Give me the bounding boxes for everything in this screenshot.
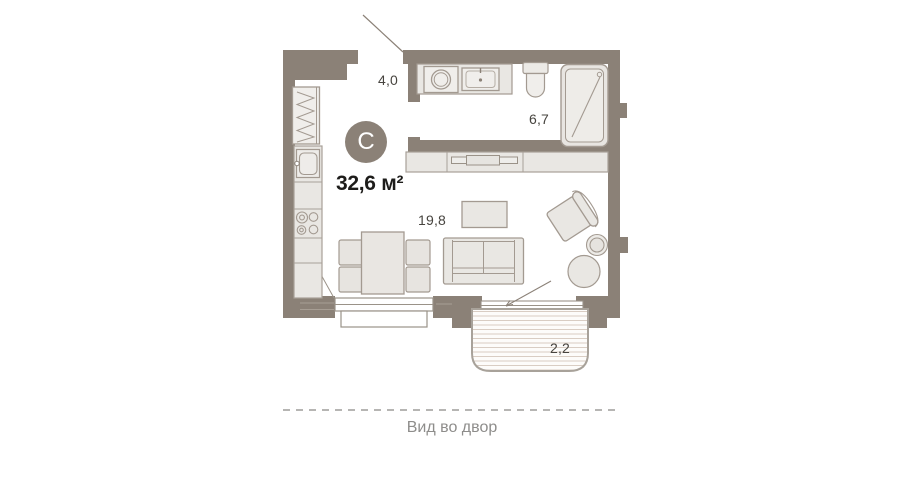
balcony-area-label: 2,2: [550, 340, 570, 356]
window: [335, 298, 433, 327]
dining-table: [362, 232, 405, 294]
sofa: [444, 238, 524, 284]
total-area-label: 32,6 м²: [336, 172, 403, 196]
entrance-door-swing: [363, 15, 403, 52]
living-room-area-label: 19,8: [418, 212, 446, 228]
bathtub: [561, 65, 608, 147]
pouf: [568, 256, 600, 288]
tv-console: [406, 152, 608, 172]
balcony: [472, 309, 588, 371]
courtyard-view-caption: Вид во двор: [407, 419, 498, 437]
apartment-type-badge: С: [345, 121, 387, 163]
wardrobe: [293, 87, 320, 144]
bathroom-sink: [462, 68, 499, 91]
courtyard-view-dashed-line: [283, 409, 621, 411]
washing-machine: [424, 67, 458, 93]
floorplan-drawing: [0, 0, 900, 479]
kitchen-sink: [295, 150, 320, 178]
floorplan-page: С 32,6 м² 4,0 6,7 19,8 2,2 Вид во двор: [0, 0, 900, 479]
hallway-area-label: 4,0: [378, 72, 398, 88]
side-table: [587, 235, 608, 256]
coffee-table: [462, 202, 507, 228]
bathroom-area-label: 6,7: [529, 111, 549, 127]
toilet: [523, 63, 548, 98]
